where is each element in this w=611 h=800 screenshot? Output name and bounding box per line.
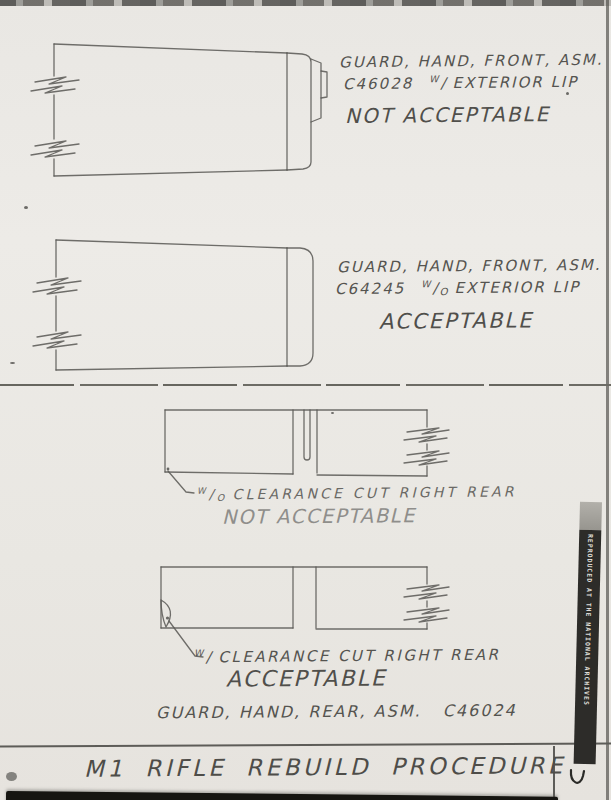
break-line-symbol <box>35 77 79 84</box>
with-abbrev: W <box>194 647 206 658</box>
clearance-note: W/OCLEARANCE CUT RIGHT REAR <box>197 482 517 503</box>
ferrule-slot <box>304 410 310 460</box>
break-line-symbol <box>37 332 81 339</box>
scan-speck <box>566 92 569 95</box>
verdict-label: NOT ACCEPTABLE <box>222 504 416 529</box>
part-number-note: C64245W/OEXTERIOR LIP <box>335 277 580 298</box>
part-number: C46024 <box>443 701 517 721</box>
verdict-label: ACCEPTABLE <box>379 308 533 333</box>
verdict-label: NOT ACCEPTABLE <box>345 102 550 128</box>
part-name-label: GUARD, HAND, REAR, ASM. C46024 <box>156 701 517 723</box>
verdict-label: ACCEPTABLE <box>226 665 387 691</box>
front-guard-without-lip-drawing <box>30 230 340 380</box>
break-line-symbol <box>407 585 449 591</box>
break-line-symbol <box>404 459 447 465</box>
scan-speck <box>10 362 15 364</box>
break-line-symbol <box>404 616 447 622</box>
part-name-label: GUARD, HAND, FRONT, ASM. <box>337 256 602 276</box>
front-guard-with-lip-drawing <box>30 35 340 185</box>
archives-strip-label: REPRODUCED AT THE NATIONAL ARCHIVES <box>581 530 595 764</box>
break-line-symbol <box>407 608 449 614</box>
handwritten-mark <box>567 767 593 793</box>
break-line-symbol <box>404 436 447 442</box>
leader-line <box>168 471 194 493</box>
break-line-symbol <box>33 341 77 348</box>
archives-strip: REPRODUCED AT THE NATIONAL ARCHIVES <box>574 502 602 764</box>
scan-black-bar <box>6 791 558 800</box>
archives-strip-body: REPRODUCED AT THE NATIONAL ARCHIVES <box>574 530 602 764</box>
break-line-symbol <box>31 86 75 93</box>
part-name-label: GUARD, HAND, FRONT, ASM. <box>339 51 604 72</box>
section-divider-line <box>0 384 611 386</box>
page-title: M1 RIFLE REBUILD PROCEDURE <box>84 752 566 781</box>
clearance-note: W/CLEARANCE CUT RIGHT REAR <box>194 645 501 667</box>
break-line-symbol <box>407 428 449 434</box>
scanned-document-page: GUARD, HAND, FRONT, ASM. C46028W/EXTERIO… <box>0 0 611 800</box>
part-number: C64245 <box>335 279 405 298</box>
break-line-symbol <box>407 451 449 457</box>
break-line-symbol <box>37 278 81 285</box>
break-line-symbol <box>35 141 79 148</box>
archives-strip-cap <box>579 502 602 531</box>
clearance-cut-shape <box>161 600 170 627</box>
break-line-symbol <box>404 593 447 599</box>
title-block-rule <box>0 742 611 747</box>
scan-edge-right <box>606 0 609 800</box>
scan-speck <box>24 206 28 209</box>
part-number-note: C46028W/EXTERIOR LIP <box>343 72 578 93</box>
part-number: C46028 <box>343 74 413 93</box>
without-abbrev: W <box>421 278 432 289</box>
with-abbrev: W <box>429 73 440 84</box>
without-abbrev: W <box>197 486 209 496</box>
break-line-symbol <box>31 150 75 157</box>
scan-smudge <box>6 772 17 781</box>
scan-noise-top-edge <box>0 0 611 6</box>
break-line-symbol <box>33 287 77 294</box>
